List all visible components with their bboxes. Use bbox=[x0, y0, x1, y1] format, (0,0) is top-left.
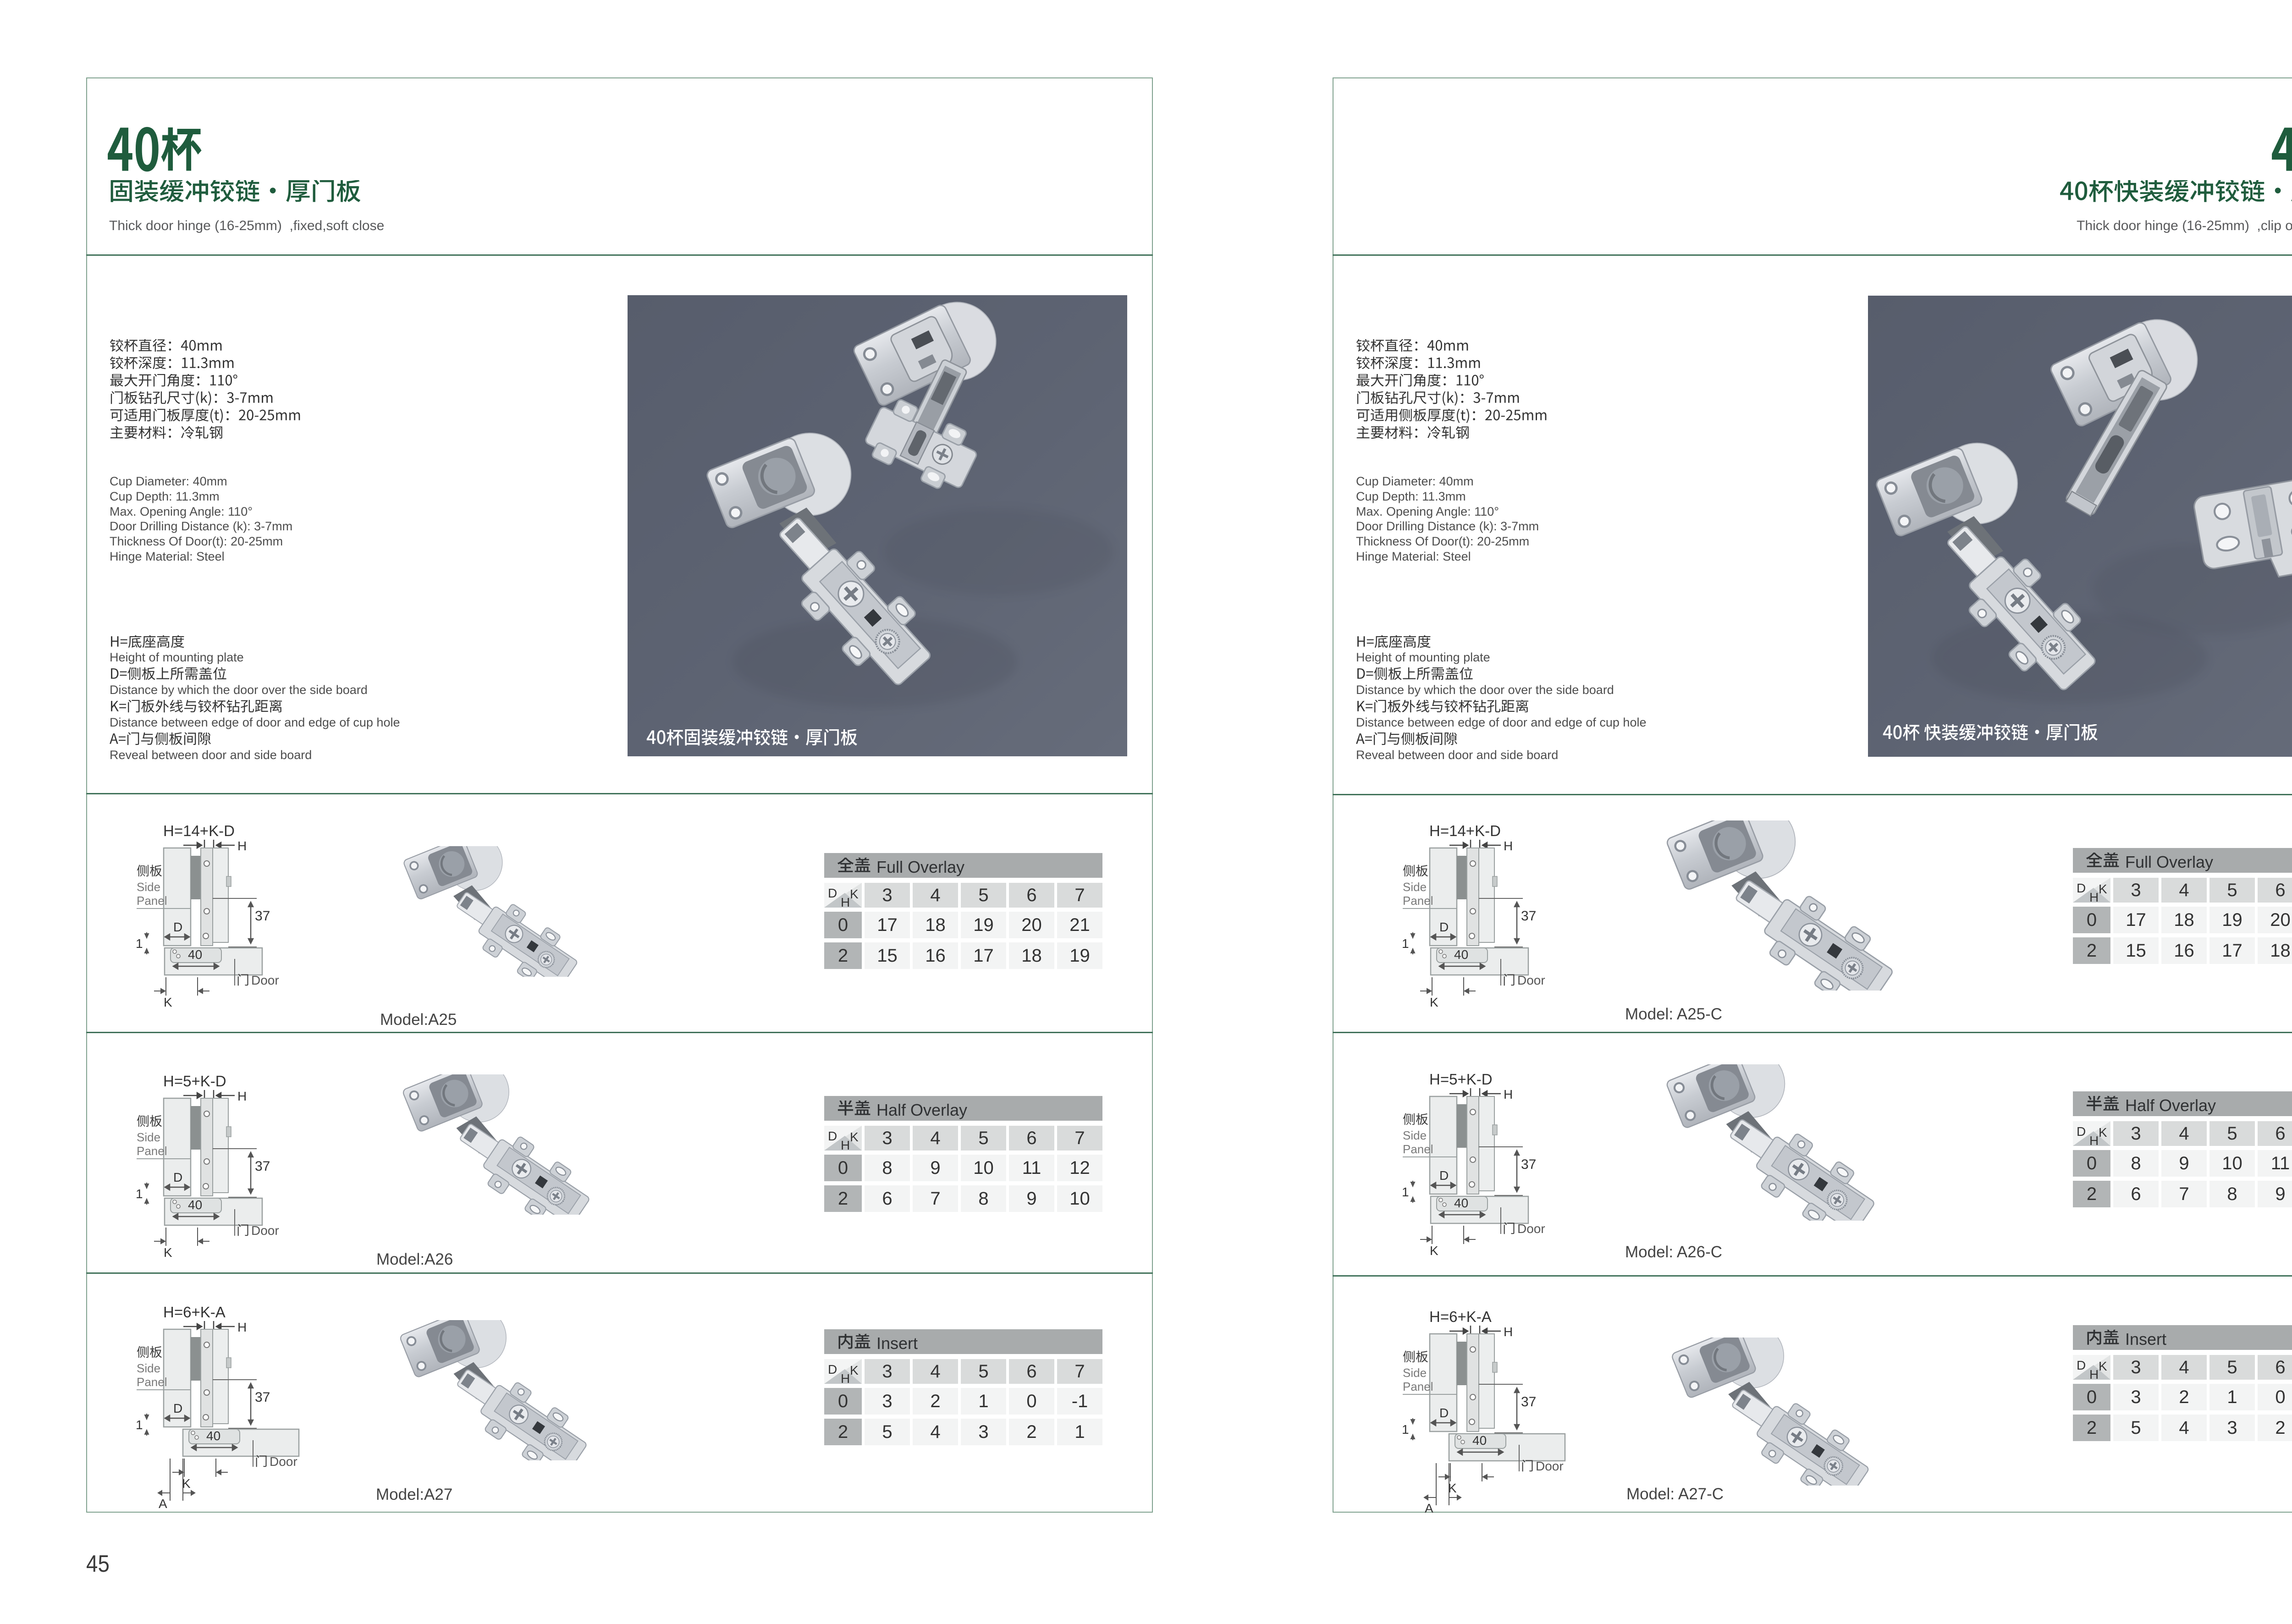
svg-text:K: K bbox=[164, 995, 172, 1009]
svg-text:Panel: Panel bbox=[137, 894, 167, 908]
svg-text:D: D bbox=[828, 1129, 837, 1143]
svg-text:40: 40 bbox=[188, 1198, 202, 1212]
svg-text:Door: Door bbox=[1536, 1459, 1564, 1473]
svg-text:1: 1 bbox=[136, 936, 143, 951]
svg-text:H: H bbox=[237, 1320, 247, 1334]
svg-text:D: D bbox=[1439, 920, 1449, 934]
svg-text:H: H bbox=[1504, 1087, 1513, 1101]
svg-text:1: 1 bbox=[136, 1418, 143, 1432]
svg-text:H: H bbox=[237, 839, 247, 853]
svg-text:A: A bbox=[1425, 1501, 1433, 1515]
svg-text:37: 37 bbox=[255, 1159, 270, 1174]
svg-text:37: 37 bbox=[1521, 908, 1536, 924]
svg-text:H: H bbox=[2089, 890, 2099, 903]
svg-text:K: K bbox=[2099, 1125, 2107, 1140]
svg-text:Side: Side bbox=[1403, 1129, 1427, 1142]
svg-text:H: H bbox=[841, 895, 850, 908]
svg-text:40: 40 bbox=[188, 947, 202, 962]
svg-text:H=14+K-D: H=14+K-D bbox=[1429, 822, 1501, 839]
svg-text:37: 37 bbox=[1521, 1157, 1536, 1172]
svg-text:Panel: Panel bbox=[137, 1375, 167, 1389]
svg-text:H: H bbox=[841, 1371, 850, 1384]
svg-text:D: D bbox=[2077, 1358, 2086, 1372]
svg-text:D: D bbox=[173, 920, 182, 934]
svg-text:D: D bbox=[2077, 1124, 2086, 1139]
svg-text:K: K bbox=[1430, 995, 1438, 1009]
svg-text:Panel: Panel bbox=[137, 1144, 167, 1158]
svg-text:A: A bbox=[159, 1497, 167, 1511]
svg-text:1: 1 bbox=[136, 1187, 143, 1201]
svg-text:D: D bbox=[173, 1401, 182, 1415]
svg-text:40: 40 bbox=[1472, 1433, 1487, 1448]
svg-text:Panel: Panel bbox=[1403, 1380, 1433, 1393]
svg-text:Side: Side bbox=[1403, 1366, 1427, 1380]
svg-text:37: 37 bbox=[255, 908, 270, 924]
svg-text:H=5+K-D: H=5+K-D bbox=[163, 1073, 226, 1090]
svg-text:D: D bbox=[828, 1362, 837, 1376]
svg-text:Side: Side bbox=[137, 1130, 160, 1144]
svg-text:Panel: Panel bbox=[1403, 894, 1433, 908]
svg-text:D: D bbox=[1439, 1406, 1449, 1420]
svg-text:K: K bbox=[850, 1363, 859, 1377]
svg-text:H: H bbox=[841, 1138, 850, 1151]
svg-text:H=14+K-D: H=14+K-D bbox=[163, 822, 235, 839]
svg-text:K: K bbox=[850, 887, 859, 901]
svg-text:Door: Door bbox=[251, 973, 279, 987]
svg-text:37: 37 bbox=[1521, 1394, 1536, 1409]
svg-text:40: 40 bbox=[1454, 1196, 1468, 1210]
svg-text:Door: Door bbox=[1517, 1222, 1545, 1236]
svg-text:H: H bbox=[2089, 1367, 2099, 1380]
svg-text:1: 1 bbox=[1402, 936, 1409, 951]
svg-text:K: K bbox=[850, 1130, 859, 1144]
svg-text:Side: Side bbox=[137, 1361, 160, 1375]
svg-text:K: K bbox=[1430, 1244, 1438, 1258]
svg-text:H=5+K-D: H=5+K-D bbox=[1429, 1071, 1493, 1088]
svg-text:Side: Side bbox=[1403, 880, 1427, 894]
svg-text:D: D bbox=[2077, 881, 2086, 895]
svg-text:Door: Door bbox=[251, 1223, 279, 1238]
svg-text:Side: Side bbox=[137, 880, 160, 894]
svg-text:40: 40 bbox=[206, 1429, 220, 1443]
svg-text:H: H bbox=[2089, 1134, 2099, 1146]
svg-text:40: 40 bbox=[1454, 947, 1468, 962]
svg-text:H: H bbox=[1504, 1325, 1513, 1339]
svg-text:H=6+K-A: H=6+K-A bbox=[1429, 1308, 1492, 1325]
svg-text:K: K bbox=[2099, 882, 2107, 896]
svg-text:1: 1 bbox=[1402, 1185, 1409, 1199]
svg-text:H: H bbox=[237, 1089, 247, 1103]
svg-text:K: K bbox=[164, 1245, 172, 1260]
svg-text:Door: Door bbox=[1517, 973, 1545, 987]
svg-text:D: D bbox=[1439, 1168, 1449, 1183]
svg-text:Panel: Panel bbox=[1403, 1142, 1433, 1156]
svg-text:1: 1 bbox=[1402, 1422, 1409, 1437]
svg-text:Door: Door bbox=[270, 1454, 298, 1469]
svg-text:D: D bbox=[173, 1170, 182, 1184]
svg-text:H: H bbox=[1504, 839, 1513, 853]
svg-text:D: D bbox=[828, 886, 837, 900]
svg-text:K: K bbox=[2099, 1359, 2107, 1373]
svg-text:37: 37 bbox=[255, 1390, 270, 1405]
svg-text:H=6+K-A: H=6+K-A bbox=[163, 1304, 226, 1321]
